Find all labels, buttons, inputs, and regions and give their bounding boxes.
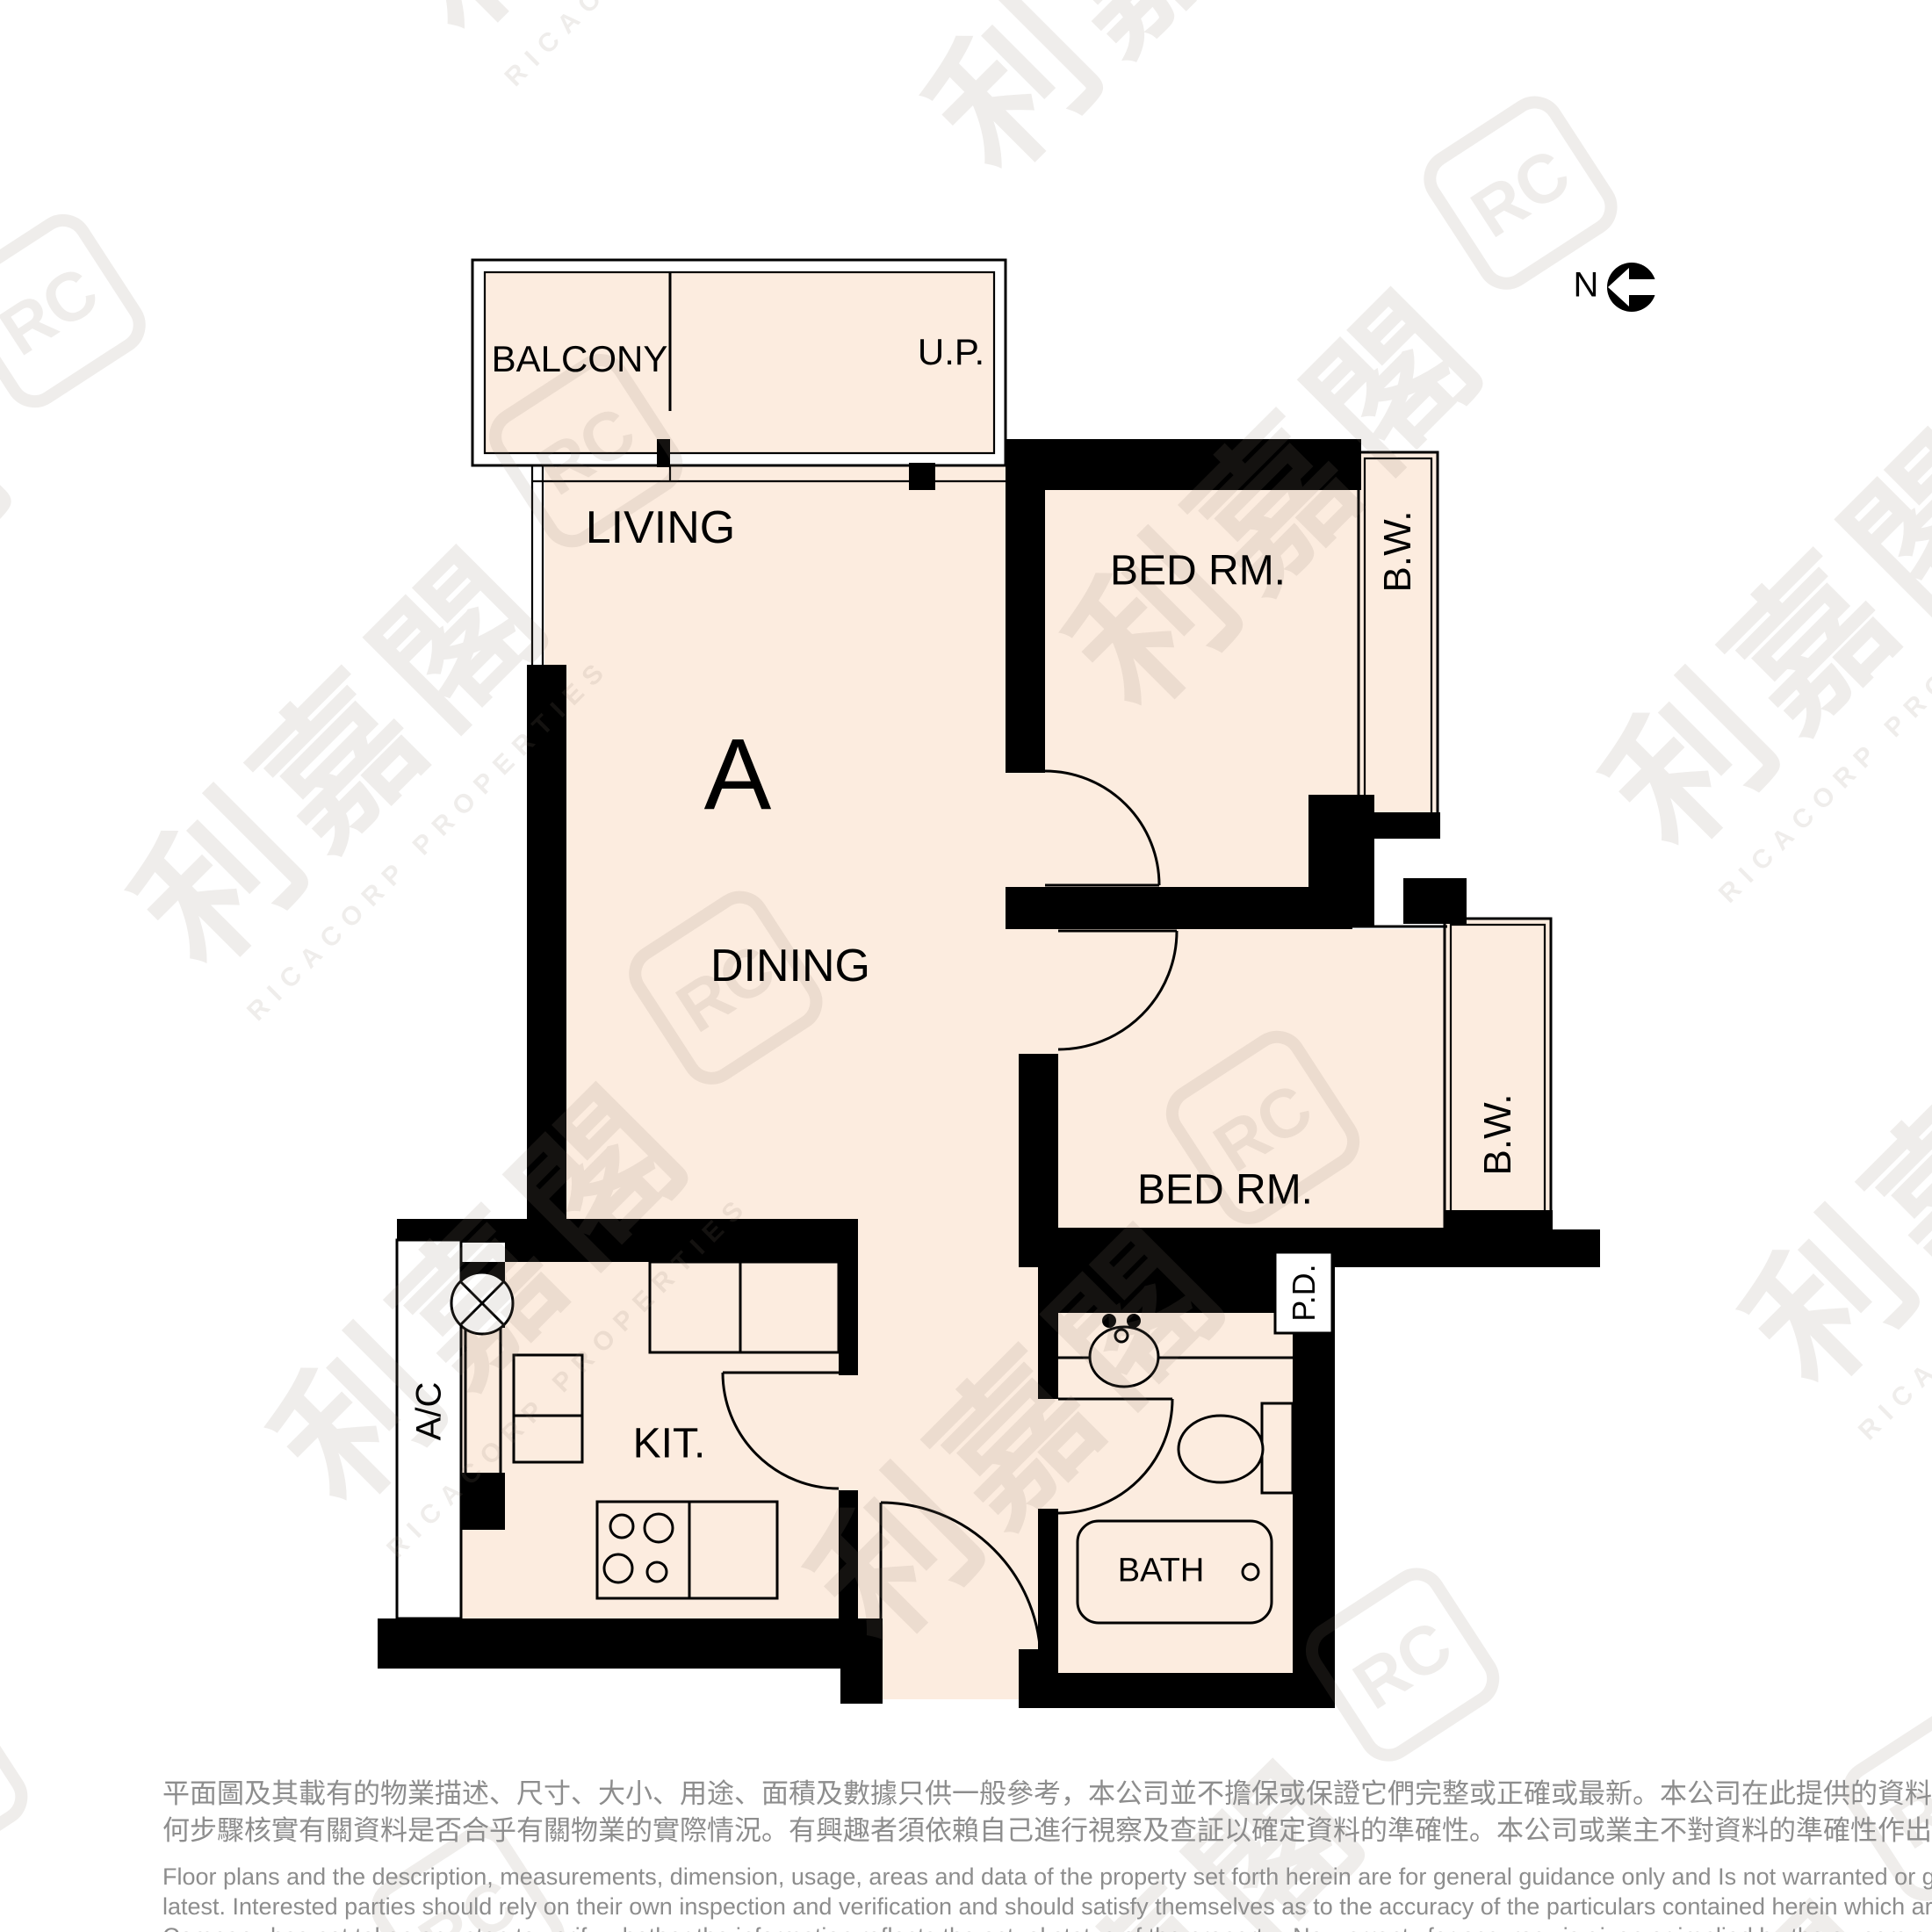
disclaimer-line: latest. Interested parties should rely o… (162, 1892, 1932, 1921)
disclaimer-line: 何步驟核實有關資料是否合乎有關物業的實際情況。有興趣者須依賴自己進行視察及查証以… (162, 1813, 1932, 1849)
label-bedroom-top: BED RM. (1110, 547, 1286, 595)
label-up: U.P. (918, 331, 984, 373)
disclaimer-line: Floor plans and the description, measure… (162, 1862, 1932, 1892)
room-labels: BALCONY U.P. LIVING A DINING BED RM. BED… (0, 0, 1932, 1932)
floorplan-page: 利嘉閣RICACORP PROPERTIESRC利嘉閣RC利嘉閣RICACORP… (0, 0, 1932, 1932)
label-pd: P.D. (1286, 1264, 1323, 1321)
label-bw-bottom: B.W. (1476, 1094, 1520, 1176)
label-ac: A/C (410, 1382, 450, 1441)
label-kitchen: KIT. (633, 1420, 706, 1468)
disclaimer-chinese: 平面圖及其載有的物業描述、尺寸、大小、用途、面積及數據只供一般參考，本公司並不擔… (162, 1776, 1932, 1849)
disclaimer-line: Company has not taken any step to verify… (162, 1921, 1932, 1932)
label-north: N (1574, 266, 1599, 306)
label-dining: DINING (710, 940, 870, 992)
label-balcony: BALCONY (492, 338, 668, 380)
disclaimer-block: 平面圖及其載有的物業描述、尺寸、大小、用途、面積及數據只供一般參考，本公司並不擔… (162, 1776, 1932, 1932)
disclaimer-line: 平面圖及其載有的物業描述、尺寸、大小、用途、面積及數據只供一般參考，本公司並不擔… (162, 1776, 1932, 1813)
label-bw-top: B.W. (1376, 511, 1420, 593)
label-bath: BATH (1118, 1553, 1205, 1590)
label-bedroom-bottom: BED RM. (1137, 1166, 1313, 1215)
label-unit: A (704, 717, 772, 833)
label-living: LIVING (586, 501, 736, 554)
disclaimer-english: Floor plans and the description, measure… (162, 1862, 1932, 1932)
